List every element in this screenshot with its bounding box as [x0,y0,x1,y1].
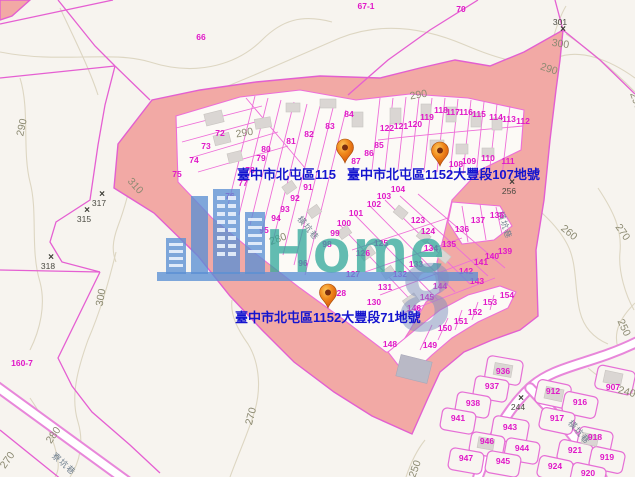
parcel-number: 918 [588,432,602,442]
parcel-number: 148 [383,339,397,349]
parcel-number: 160-7 [11,358,33,368]
parcel-number: 936 [496,366,510,376]
parcel-number: 82 [304,129,314,139]
parcel-number: 122 [380,123,394,133]
parcel-number: 87 [351,156,361,166]
parcel-number: 120 [408,119,422,129]
parcel-number: 138 [490,210,504,220]
contour-elevation-label: 300 [551,37,570,51]
parcel-number: 92 [290,193,300,203]
parcel-number: 937 [485,381,499,391]
spot-height-value: 256 [502,186,516,196]
parcel-number: 86 [364,148,374,158]
parcel-number: 112 [516,116,530,126]
parcel-number: 921 [568,445,582,455]
parcel-number: 114 [489,112,503,122]
parcel-number: 924 [548,461,562,471]
parcel-number: 151 [454,316,468,326]
parcel-number: 113 [502,114,516,124]
parcel-number: 946 [480,436,494,446]
parcel-number: 153 [483,297,497,307]
parcel-number: 916 [573,397,587,407]
parcel-number: 80 [261,144,271,154]
spot-height-value: 244 [511,402,525,412]
cadastral-map[interactable]: 2903103002802702702902902803002902902602… [0,0,635,477]
parcel-number: 139 [498,246,512,256]
parcel-number: 66 [196,32,206,42]
parcel-number: 104 [391,184,405,194]
parcel-number: 109 [462,156,476,166]
parcel-number: 73 [201,141,211,151]
spot-height-value: 318 [41,261,55,271]
parcel-number: 130 [367,297,381,307]
parcel-number: 93 [280,204,290,214]
parcel-number: 116 [459,107,473,117]
parcel-number: 81 [286,136,296,146]
parcel-address-label[interactable]: 臺中市北屯區1152大豐段107地號 [347,167,540,182]
parcel-number: 84 [344,109,354,119]
parcel-number: 917 [550,413,564,423]
parcel-number: 136 [455,224,469,234]
parcel-number: 75 [172,169,182,179]
map-viewport[interactable]: 2903103002802702702902902803002902902602… [0,0,635,477]
parcel-number: 119 [420,112,434,122]
parcel-number: 941 [451,413,465,423]
parcel-number: 919 [600,452,614,462]
parcel-number: 115 [472,109,486,119]
parcel-number: 152 [468,307,482,317]
parcel-number: 74 [189,155,199,165]
parcel-number: 118 [434,105,448,115]
parcel-number: 947 [459,453,473,463]
parcel-number: 85 [374,140,384,150]
parcel-number: 154 [500,290,514,300]
parcel-number: 141 [474,257,488,267]
parcel-address-label[interactable]: 臺中市北屯區1152大豐段71地號 [235,310,421,325]
parcel-number: 137 [471,215,485,225]
parcel-number: 945 [496,456,510,466]
parcel-number: 70 [456,4,466,14]
parcel-number: 943 [503,422,517,432]
parcel-number: 79 [256,153,266,163]
parcel-number: 907 [606,382,620,392]
parcel-number: 110 [481,153,495,163]
parcel-number: 912 [546,386,560,396]
parcel-number: 117 [446,107,460,117]
parcel-address-label[interactable]: 臺中市北屯區115 [237,167,336,182]
parcel-number: 83 [325,121,335,131]
parcel-number: 121 [394,121,408,131]
parcel-number: 944 [515,443,529,453]
parcel-number: 103 [377,191,391,201]
spot-height-value: 301 [553,17,567,27]
parcel-number: 938 [466,398,480,408]
spot-height-value: 317 [92,198,106,208]
parcel-number: 72 [215,128,225,138]
parcel-number: 91 [303,182,313,192]
parcel-number: 920 [581,468,595,477]
parcel-number: 111 [501,156,515,166]
parcel-number: 67-1 [357,1,374,11]
spot-height-value: 315 [77,214,91,224]
